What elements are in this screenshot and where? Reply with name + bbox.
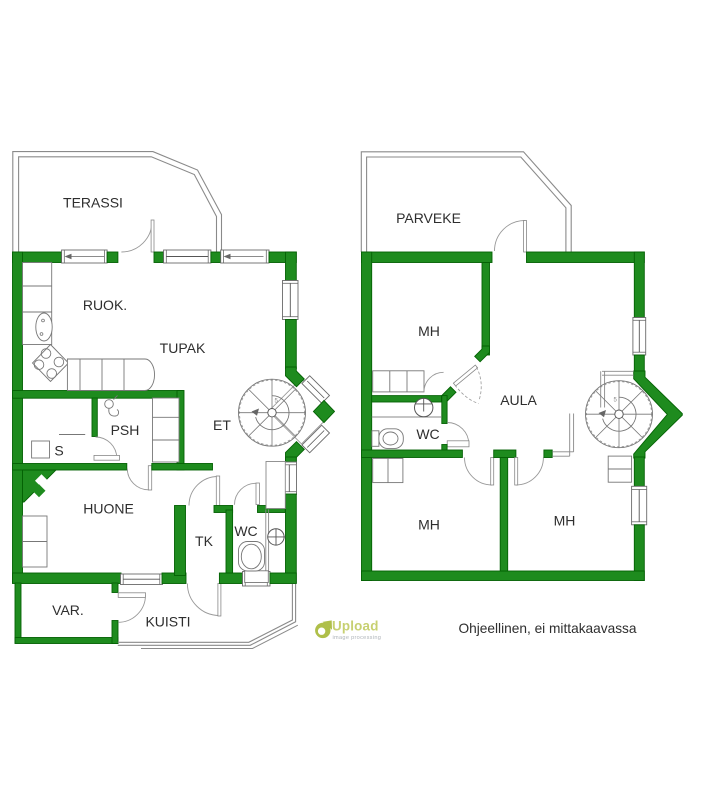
svg-text:WC: WC	[416, 426, 439, 442]
svg-text:PARVEKE: PARVEKE	[396, 210, 461, 226]
svg-text:Ohjeellinen, ei mittakaavassa: Ohjeellinen, ei mittakaavassa	[458, 621, 636, 636]
svg-text:VAR.: VAR.	[52, 602, 84, 618]
svg-text:TUPAK: TUPAK	[160, 340, 206, 356]
svg-text:WC: WC	[234, 523, 257, 539]
svg-text:MH: MH	[418, 323, 440, 339]
svg-text:MH: MH	[418, 517, 440, 533]
svg-text:MH: MH	[554, 513, 576, 529]
svg-text:image processing: image processing	[333, 635, 382, 641]
svg-text:PSH: PSH	[111, 422, 140, 438]
svg-text:TK: TK	[195, 533, 214, 549]
svg-text:KUISTI: KUISTI	[145, 614, 190, 630]
svg-text:AULA: AULA	[500, 392, 537, 408]
svg-text:RUOK.: RUOK.	[83, 297, 127, 313]
svg-text:TERASSI: TERASSI	[63, 195, 123, 211]
svg-text:HUONE: HUONE	[83, 501, 134, 517]
svg-text:Upload: Upload	[332, 618, 379, 633]
svg-text:S: S	[54, 443, 63, 459]
svg-text:ET: ET	[213, 417, 231, 433]
